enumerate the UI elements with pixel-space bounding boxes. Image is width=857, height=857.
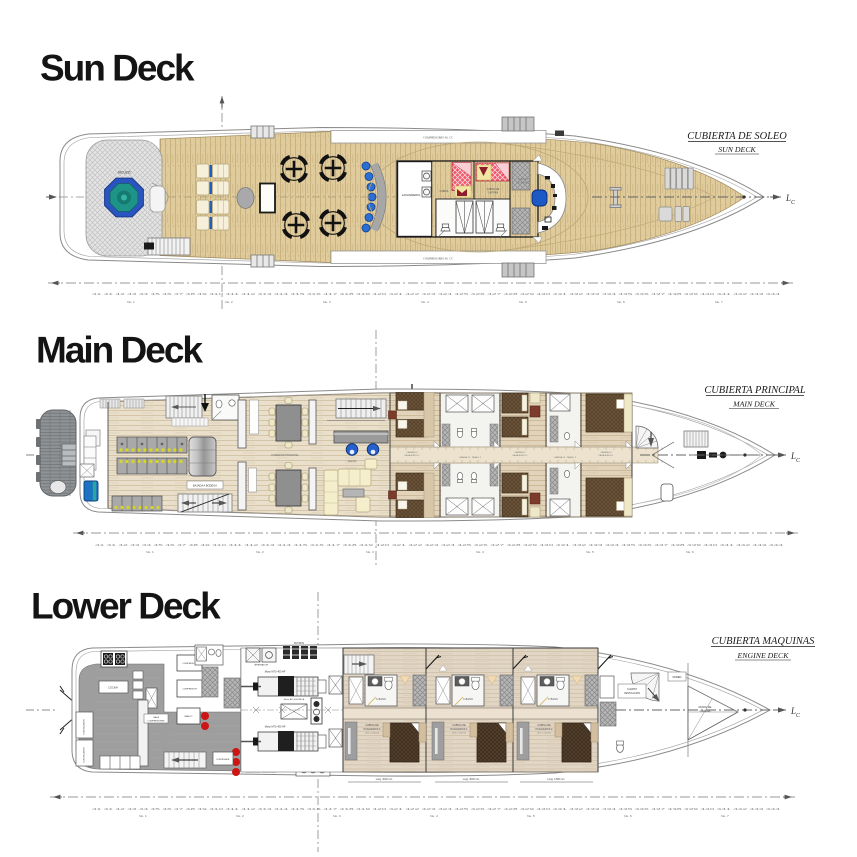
svg-text:COMEDOR PRINCIPAL: COMEDOR PRINCIPAL: [271, 453, 299, 457]
svg-text:No. 1: No. 1: [146, 550, 154, 554]
svg-text:CUBIERTA MAQUINAS: CUBIERTA MAQUINAS: [712, 636, 815, 647]
svg-text:BANCO: BANCO: [185, 715, 193, 718]
svg-text:Motor MTU 400 HP: Motor MTU 400 HP: [265, 726, 286, 729]
svg-text:DE MANDO: DE MANDO: [517, 181, 530, 184]
svg-text:PASAJEROS 2: PASAJEROS 2: [364, 728, 382, 731]
svg-text:ENGINE DECK: ENGINE DECK: [737, 651, 790, 660]
svg-text:GENERADOR: GENERADOR: [254, 664, 269, 667]
svg-text:Motor MTU 400 HP: Motor MTU 400 HP: [265, 671, 286, 674]
svg-text:CABINA 14: CABINA 14: [600, 451, 612, 454]
svg-text:Long. 3000 mm: Long. 3000 mm: [376, 778, 393, 781]
svg-text:SUN DECK: SUN DECK: [718, 145, 756, 154]
svg-text:No. 2: No. 2: [236, 814, 244, 818]
svg-text:No. 3: No. 3: [366, 550, 374, 554]
svg-text:No. 5: No. 5: [519, 300, 527, 304]
svg-text:VENTILACION: VENTILACION: [624, 692, 640, 695]
svg-text:No. 7: No. 7: [721, 814, 729, 818]
svg-text:No. 6: No. 6: [617, 300, 625, 304]
svg-text:No. 3: No. 3: [333, 814, 341, 818]
svg-text:COCINA: COCINA: [108, 686, 118, 690]
svg-text:No. 3: No. 3: [323, 300, 331, 304]
svg-text:CUBIERTA DE SOLEO: CUBIERTA DE SOLEO: [687, 131, 787, 142]
svg-text:DISPENSER: DISPENSER: [217, 759, 230, 761]
svg-text:PASAJEROS 1: PASAJEROS 1: [599, 454, 615, 457]
svg-text:(2m x 1.60 m): (2m x 1.60 m): [365, 732, 379, 734]
svg-text:No. 4: No. 4: [476, 550, 484, 554]
svg-text:Main Deck: Main Deck: [36, 330, 203, 371]
svg-text:No. 5: No. 5: [527, 814, 535, 818]
svg-text:No. 4: No. 4: [421, 300, 429, 304]
svg-text:CABINA 12: CABINA 12: [514, 451, 526, 454]
svg-text:CONGELADOR: CONGELADOR: [83, 747, 86, 763]
svg-text:CABINA 10: CABINA 10: [406, 451, 418, 454]
svg-text:Motor API 4362/MCA: Motor API 4362/MCA: [284, 698, 305, 701]
svg-text:No. 2: No. 2: [256, 550, 264, 554]
svg-text:No. 6: No. 6: [686, 550, 694, 554]
svg-text:CAPITAN: CAPITAN: [488, 191, 498, 194]
svg-text:No. 7: No. 7: [715, 300, 723, 304]
svg-text:41 41 42 43 44 45 46 47 48 49: 41 41 42 43 44 45 46 47 48 49 410 411 41…: [92, 807, 782, 811]
svg-text:No. 4: No. 4: [430, 814, 438, 818]
svg-text:CUBIERTA PRINCIPAL: CUBIERTA PRINCIPAL: [704, 385, 806, 396]
svg-text:SALON: SALON: [348, 459, 357, 463]
svg-text:PARED: PARED: [673, 675, 682, 679]
svg-text:CABINA 13 - PASAJ. 2: CABINA 13 - PASAJ. 2: [554, 456, 577, 459]
svg-text:PANOL DE: PANOL DE: [699, 705, 712, 709]
svg-text:Sun Deck: Sun Deck: [40, 48, 195, 89]
svg-text:COMPRESORES 46. CC: COMPRESORES 46. CC: [423, 256, 454, 260]
svg-text:Lower Deck: Lower Deck: [31, 586, 221, 627]
svg-text:COMPRESOR: COMPRESOR: [182, 689, 197, 691]
svg-text:BAJADA A BODEGA: BAJADA A BODEGA: [193, 483, 217, 487]
svg-text:FILTROS: FILTROS: [294, 642, 304, 645]
svg-text:C.BANO: C.BANO: [376, 697, 386, 701]
svg-text:CABINA 11 - PASAJ. 2: CABINA 11 - PASAJ. 2: [459, 456, 482, 459]
svg-text:LAVANDERIA: LAVANDERIA: [402, 193, 421, 197]
svg-text:COMPRESORES 46. CC: COMPRESORES 46. CC: [423, 136, 454, 140]
svg-text:CUARTO: CUARTO: [627, 688, 637, 691]
svg-text:No. 2: No. 2: [225, 300, 233, 304]
svg-text:CABINA: CABINA: [440, 190, 449, 193]
svg-text:41 41 42 43 44 45 46 47 48 49: 41 41 42 43 44 45 46 47 48 49 410 411 41…: [95, 543, 785, 547]
svg-text:No. 6: No. 6: [624, 814, 632, 818]
svg-text:COMPRESORES: COMPRESORES: [147, 720, 165, 722]
svg-text:JACUZZI: JACUZZI: [117, 171, 130, 175]
svg-text:No. 5: No. 5: [586, 550, 594, 554]
svg-text:Long. 3.800 mm: Long. 3.800 mm: [547, 778, 564, 781]
svg-text:SALA: SALA: [153, 716, 159, 719]
svg-text:PASAJEROS 2: PASAJEROS 2: [405, 454, 421, 457]
svg-text:CONGELADOR: CONGELADOR: [83, 719, 86, 735]
svg-text:No. 1: No. 1: [127, 300, 135, 304]
svg-text:No. 1: No. 1: [139, 814, 147, 818]
svg-text:PASAJEROS 2: PASAJEROS 2: [513, 454, 529, 457]
svg-text:Long. 3000 mm: Long. 3000 mm: [463, 778, 480, 781]
svg-text:41 41 42 43 44 45 46 47 48 49: 41 41 42 43 44 45 46 47 48 49 410 411 41…: [92, 292, 782, 296]
svg-text:CABINA DE: CABINA DE: [365, 724, 379, 727]
svg-text:MAIN DECK: MAIN DECK: [732, 400, 776, 409]
